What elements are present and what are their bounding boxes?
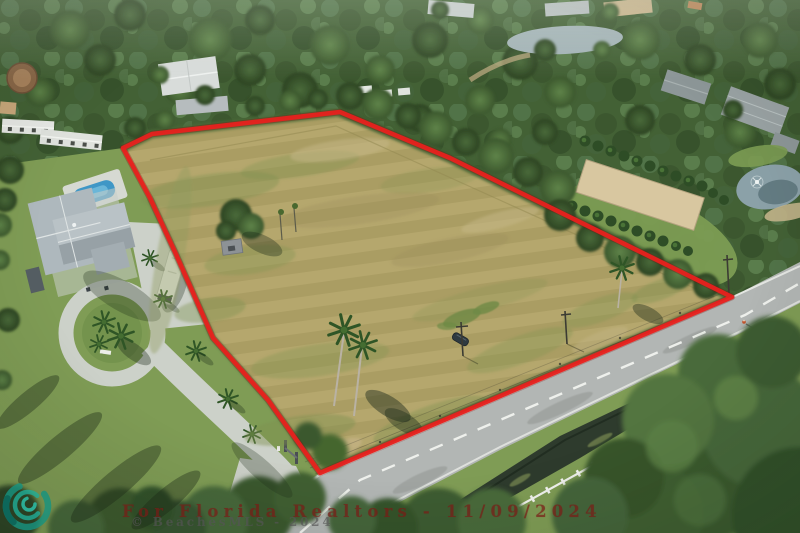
vignette <box>0 0 800 533</box>
aerial-photo: For Florida Realtors - 11/09/2024 © Beac… <box>0 0 800 533</box>
mls-swirl-icon <box>0 476 58 533</box>
aerial-photo-scene <box>0 0 800 533</box>
